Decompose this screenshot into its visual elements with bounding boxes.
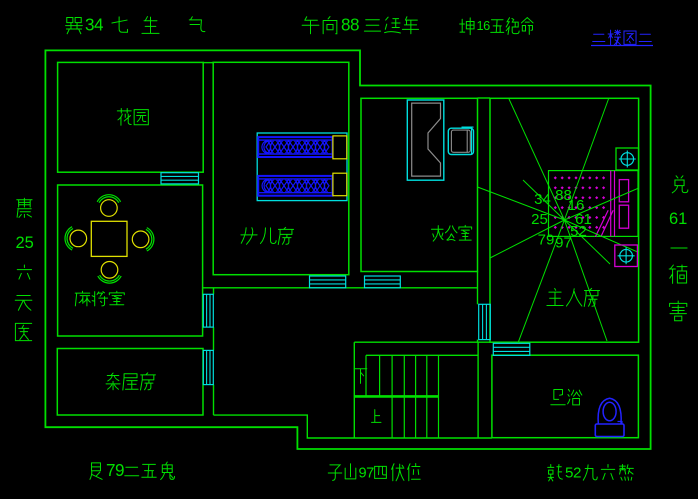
svg-text:79: 79 [106, 461, 124, 480]
svg-text:25: 25 [531, 211, 548, 228]
svg-text:52: 52 [570, 223, 587, 240]
svg-text:61: 61 [669, 210, 687, 228]
svg-text:79: 79 [538, 232, 555, 249]
svg-text:25: 25 [16, 234, 34, 252]
svg-text:88: 88 [341, 16, 359, 35]
svg-text:97: 97 [359, 466, 375, 482]
svg-text:16: 16 [477, 18, 491, 33]
svg-text:34: 34 [85, 16, 103, 35]
svg-text:34: 34 [534, 191, 551, 208]
svg-text:52: 52 [565, 465, 581, 482]
